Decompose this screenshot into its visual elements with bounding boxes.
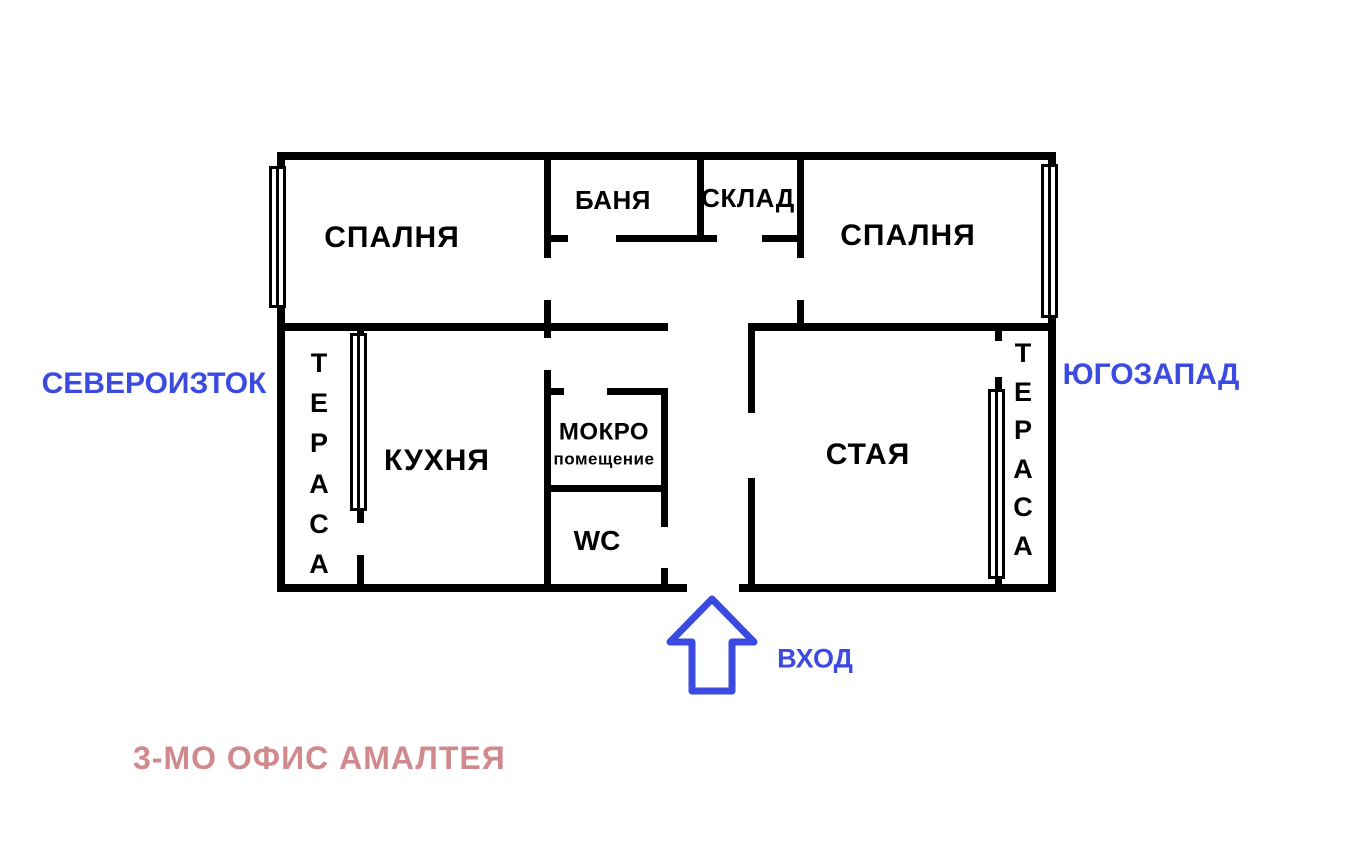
terrace-left-letter: Т (311, 348, 328, 379)
wall-livingroom-left-lower (748, 478, 755, 584)
label-wet-room-line1: МОКРО (554, 421, 655, 445)
window-bedroom-right (1041, 164, 1058, 318)
floor-plan: СПАЛНЯ БАНЯ СКЛАД СПАЛНЯ КУХНЯ СТАЯ WC М… (0, 0, 1360, 856)
wall-wetroom-top-left (544, 388, 564, 395)
label-direction-northeast: СЕВЕРОИЗТОК (42, 369, 267, 399)
terrace-right-letter: А (1013, 454, 1033, 485)
wall-mid-left (277, 323, 668, 331)
wall-wetroom-top-right (607, 388, 668, 395)
window-pane (276, 169, 279, 305)
wall-bathroom-bottom-left (544, 235, 568, 242)
wall-terrace-left-divider-lower (357, 555, 364, 584)
window-bedroom-left (269, 166, 286, 308)
label-wc: WC (574, 527, 621, 555)
entrance-arrow-icon (666, 594, 758, 696)
terrace-left-letter: С (309, 509, 329, 540)
terrace-left-letter: Е (310, 388, 328, 419)
label-bathroom: БАНЯ (575, 187, 651, 213)
wall-wc-right-lower (661, 568, 668, 584)
wall-bedroom-right-left-lower (797, 300, 804, 323)
label-kitchen: КУХНЯ (384, 446, 490, 476)
label-direction-southwest: ЮГОЗАПАД (1063, 360, 1240, 390)
label-storage: СКЛАД (701, 185, 795, 211)
label-wet-room: МОКРО помещение (554, 421, 655, 468)
wall-terrace-right-divider-stub (995, 331, 1002, 341)
terrace-left-letter: Р (310, 428, 328, 459)
label-wet-room-line2: помещение (554, 451, 655, 468)
wall-wc-right-upper (661, 492, 668, 527)
wall-outer-top (277, 152, 1056, 160)
wall-outer-bottom-right (739, 584, 1056, 592)
label-living-room: СТАЯ (826, 440, 911, 470)
terrace-right-letter: Т (1015, 338, 1032, 369)
terrace-left-letter: А (309, 549, 329, 580)
wall-kitchen-right-stub (544, 331, 551, 338)
window-pane (1048, 167, 1051, 315)
wall-kitchen-right-lower (544, 370, 551, 592)
wall-wetroom-right (661, 388, 668, 492)
wall-storage-bottom (762, 235, 798, 242)
wall-bedroom-right-left-upper (797, 152, 804, 258)
terrace-right-letter: С (1013, 492, 1033, 523)
terrace-left-letter: А (309, 469, 329, 500)
wall-bedroom-left-right-lower (544, 300, 551, 323)
window-pane (995, 392, 998, 576)
wall-mid-right (748, 323, 1056, 331)
wall-wetroom-bottom (547, 485, 668, 492)
terrace-right-letter: Р (1014, 415, 1032, 446)
label-bedroom-left: СПАЛНЯ (324, 223, 460, 253)
label-terrace-right: Т Е Р А С А (1002, 338, 1044, 562)
wall-outer-bottom-left (277, 584, 687, 592)
window-pane (357, 336, 360, 508)
window-kitchen (350, 333, 367, 511)
wall-livingroom-left-upper (748, 323, 755, 413)
page-title: 3-МО ОФИС АМАЛТЕЯ (133, 740, 506, 777)
label-terrace-left: Т Е Р А С А (296, 348, 342, 580)
terrace-right-letter: А (1013, 531, 1033, 562)
label-bedroom-right: СПАЛНЯ (840, 221, 976, 251)
wall-bedroom-left-right-upper (544, 152, 551, 258)
label-entrance: ВХОД (777, 646, 853, 673)
terrace-right-letter: Е (1014, 377, 1032, 408)
